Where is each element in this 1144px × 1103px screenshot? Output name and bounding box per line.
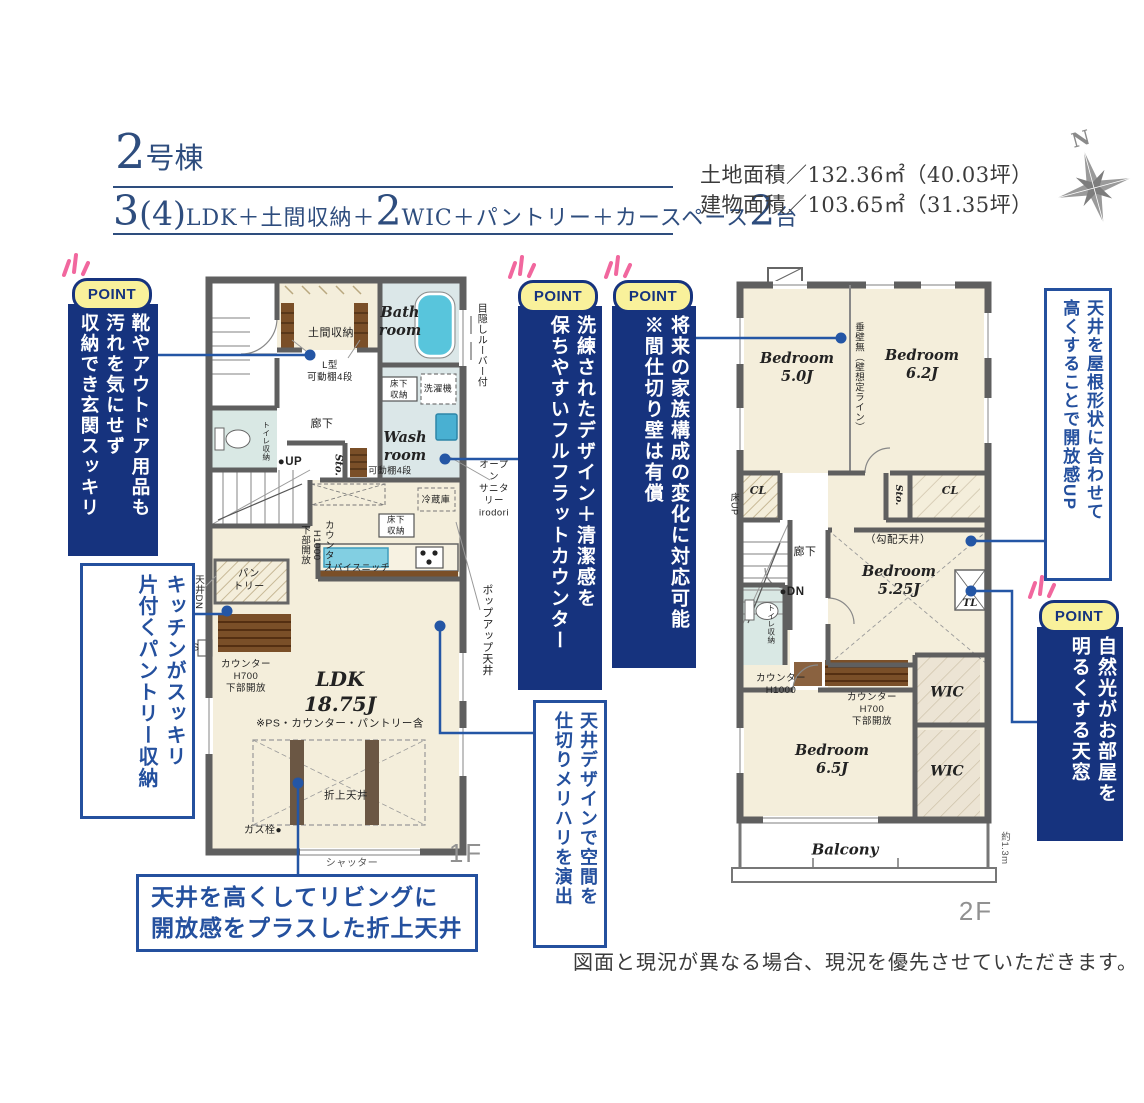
building-number: 2	[115, 124, 146, 180]
label-hall-1f: 廊下	[311, 418, 334, 432]
bathtub	[417, 294, 453, 356]
point-note-skylight: 自然光がお部屋を 明るくする天窓	[1037, 627, 1123, 841]
label-balcony-depth: 約1.3m	[998, 831, 1010, 864]
label-fridge: 冷蔵庫	[422, 494, 451, 505]
note-ceiling-design: 天井デザインで空間を 仕切りメリハリを演出	[533, 700, 607, 948]
label-bedroom3: Bedroom 5.25J	[862, 563, 936, 599]
compass-icon: N	[1050, 126, 1138, 230]
label-shelf4: 可動棚4段	[368, 465, 412, 476]
label-washroom: Wash room	[383, 429, 426, 465]
note-pantry: キッチンがスッキリ 片付くパントリー収納	[80, 563, 195, 819]
toilet-tank	[215, 428, 224, 450]
point-note-counter: 洗練されたデザイン＋清潔感を 保ちやすいフルフラットカウンター	[518, 306, 602, 690]
label-underfloor1: 床下 収納	[390, 378, 408, 399]
label-cl2: CL	[942, 484, 959, 498]
label-doma-sub: L型 可動棚4段	[307, 360, 353, 384]
spec-seg1: LDK＋土間収納＋	[186, 200, 376, 232]
spark-icon	[506, 254, 536, 280]
point-badge-2-label: POINT	[534, 288, 582, 305]
label-dn: ●DN	[779, 585, 804, 599]
layout-spec: 3 (4) LDK＋土間収納＋ 2 WIC＋パントリー＋カースペース 2 台	[113, 191, 673, 233]
spark-icon	[60, 252, 90, 278]
point-note-partition: 将来の家族構成の変化に対応可能 ※間仕切り壁は有償	[612, 306, 696, 668]
stove	[416, 547, 443, 568]
label-tl: TL	[963, 598, 977, 611]
doma-shelf-left	[281, 303, 294, 348]
label-toilet-storage-2f: トイレ収納	[766, 604, 775, 644]
label-louver: 目隠しルーバー付	[474, 303, 487, 387]
label-counter-h1000-2f: カウンター H1000	[756, 673, 806, 697]
label-sloped-ceiling: （勾配天井）	[865, 533, 931, 546]
label-bedroom1: Bedroom 5.0J	[760, 350, 834, 386]
label-washer: 洗濯機	[424, 383, 453, 394]
spec-num-ldk: 3	[113, 191, 139, 232]
label-gas: ガス栓●	[244, 825, 282, 838]
spark-icon	[602, 254, 632, 280]
flyer-page: 2号棟 3 (4) LDK＋土間収納＋ 2 WIC＋パントリー＋カースペース 2…	[0, 0, 1144, 1103]
toilet-tank-2f	[745, 600, 754, 620]
note-coffered: 天井を高くしてリビングに 開放感をプラスした折上天井	[136, 874, 478, 952]
label-counter-h700-2f: カウンター H700 下部開放	[847, 692, 897, 728]
label-pantry: パン トリー	[233, 569, 265, 594]
label-toilet-storage-1f: トイレ収納	[261, 421, 270, 461]
label-ldk-note: ※PS・カウンター・パントリー含	[256, 717, 424, 730]
label-sto-1f: Sto.	[331, 454, 344, 476]
label-underfloor2: 床下 収納	[387, 514, 405, 535]
label-no-wall: 垂壁無（壁想定ライン）	[852, 322, 864, 432]
disclaimer-text: 図面と現況が異なる場合、現況を優先させていただきます。	[556, 946, 1138, 975]
toilet-bowl	[226, 430, 250, 448]
spec-seg2: WIC＋パントリー＋カースペース	[402, 200, 750, 232]
label-popup-ceiling: ポップアップ天井	[479, 584, 493, 676]
land-area: 土地面積／132.36㎡（40.03坪）	[700, 160, 1033, 190]
note-roof-ceiling: 天井を屋根形状に合わせて 高くすることで開放感UP	[1044, 288, 1112, 581]
label-up: ●UP	[278, 455, 302, 469]
point-badge-3: POINT	[613, 280, 693, 313]
label-spice-niche: スパイスニッチ	[324, 562, 390, 573]
point-note-entrance: 靴やアウトドア用品も 汚れを気にせず 収納でき玄関スッキリ	[68, 304, 158, 556]
label-counter-h700-1f: カウンター H700 下部開放	[221, 659, 271, 695]
label-ldk: LDK 18.75J	[304, 667, 376, 717]
label-bedroom2: Bedroom 6.2J	[885, 347, 959, 383]
point-badge-2: POINT	[518, 280, 598, 313]
area-info: 土地面積／132.36㎡（40.03坪） 建物面積／103.65㎡（31.35坪…	[700, 160, 1033, 221]
balcony-rail	[732, 868, 996, 882]
label-wic1: WIC	[930, 684, 963, 702]
label-cl1: CL	[750, 484, 767, 498]
point-badge-4: POINT	[1039, 600, 1119, 633]
point-badge-3-label: POINT	[629, 288, 677, 305]
label-balcony: Balcony	[812, 841, 879, 860]
building-suffix: 号棟	[146, 141, 204, 175]
point-badge-1: POINT	[72, 278, 152, 311]
label-wic2: WIC	[930, 763, 963, 781]
label-bedroom4: Bedroom 6.5J	[795, 742, 869, 778]
label-floor-up: 床UP	[728, 492, 739, 515]
spark-icon	[1026, 574, 1056, 600]
label-shutter: シャッター	[326, 858, 379, 871]
label-floor1: 1F	[449, 837, 483, 870]
label-coffered: 折上天井	[324, 789, 368, 802]
vanity-sink	[436, 414, 457, 440]
point-badge-1-label: POINT	[88, 286, 136, 303]
compass-n-label: N	[1069, 126, 1093, 153]
label-open-sanitary: オープン サニタリー irodori	[479, 459, 510, 518]
label-bathroom: Bath room	[379, 304, 421, 340]
label-floor2: 2F	[959, 895, 993, 928]
title-rule-bottom	[113, 233, 673, 235]
spec-num-wic: 2	[376, 191, 402, 232]
building-area: 建物面積／103.65㎡（31.35坪）	[700, 190, 1033, 220]
floorplan-1f: 土間収納 L型 可動棚4段 Bath room 床下 収納 洗濯機 Wash r…	[190, 258, 525, 873]
label-hall-2f: 廊下	[794, 546, 817, 560]
label-doma: 土間収納	[308, 327, 354, 341]
building-title: 2号棟	[115, 128, 204, 177]
floorplan-2f: Bedroom 5.0J Bedroom 6.2J 垂壁無（壁想定ライン） 床U…	[718, 258, 1028, 938]
point-badge-4-label: POINT	[1055, 608, 1103, 625]
label-sto-2f: Sto.	[892, 485, 904, 506]
doma-shelf-right	[354, 303, 368, 348]
spec-paren: (4)	[139, 194, 186, 233]
